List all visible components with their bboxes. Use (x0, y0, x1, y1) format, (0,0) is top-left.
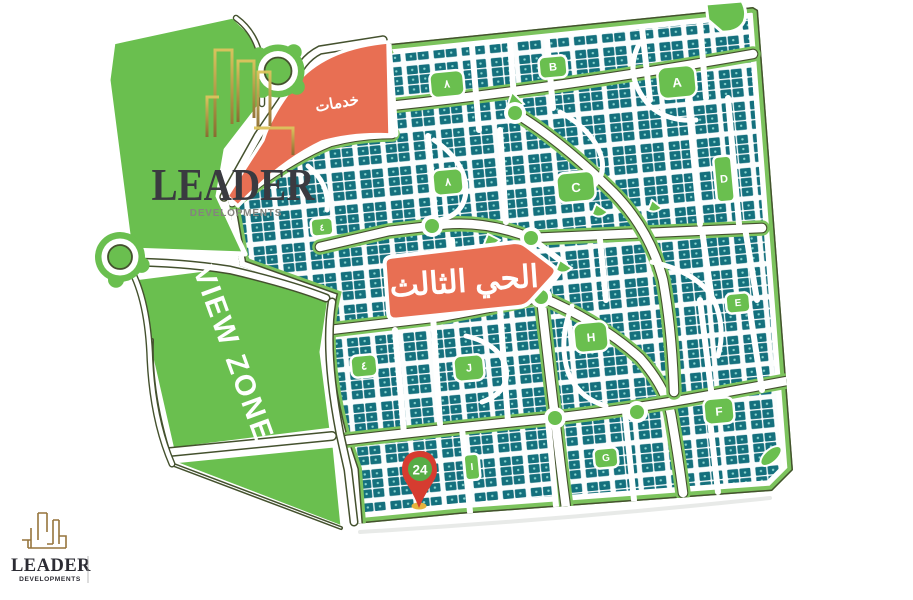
svg-text:٨: ٨ (443, 78, 451, 91)
svg-text:٤: ٤ (361, 360, 368, 373)
svg-text:E: E (734, 298, 742, 310)
svg-text:D: D (720, 173, 729, 186)
svg-text:LEADER: LEADER (151, 161, 315, 211)
svg-text:LEADER: LEADER (11, 556, 91, 576)
svg-text:٨: ٨ (444, 176, 452, 189)
svg-text:24: 24 (412, 463, 428, 478)
svg-text:G: G (602, 453, 611, 465)
svg-text:H: H (586, 330, 596, 345)
svg-text:J: J (465, 362, 472, 375)
svg-text:DEVELOPMENTS: DEVELOPMENTS (19, 576, 81, 583)
svg-text:DEVELOPMENTS: DEVELOPMENTS (190, 208, 282, 219)
svg-text:B: B (549, 61, 558, 74)
svg-text:F: F (715, 404, 724, 419)
